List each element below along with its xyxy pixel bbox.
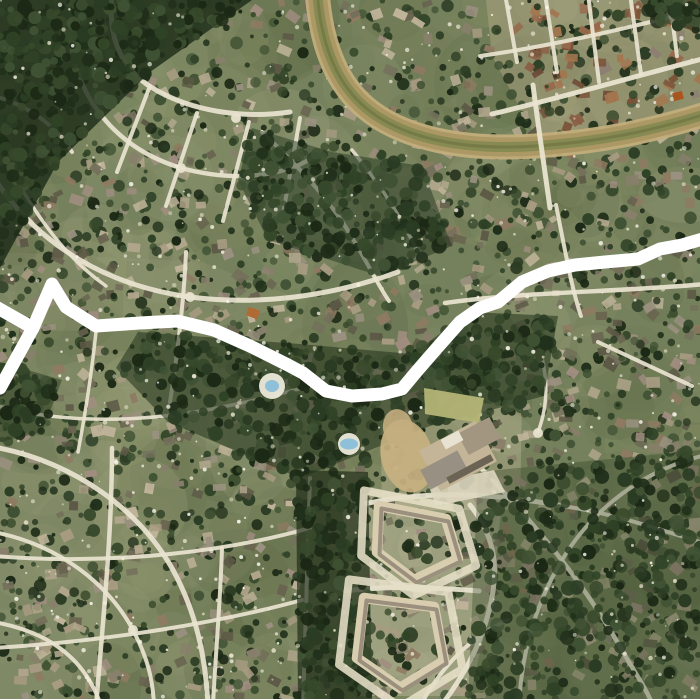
satellite-imagery-canvas	[0, 0, 700, 699]
map-viewport[interactable]	[0, 0, 700, 699]
